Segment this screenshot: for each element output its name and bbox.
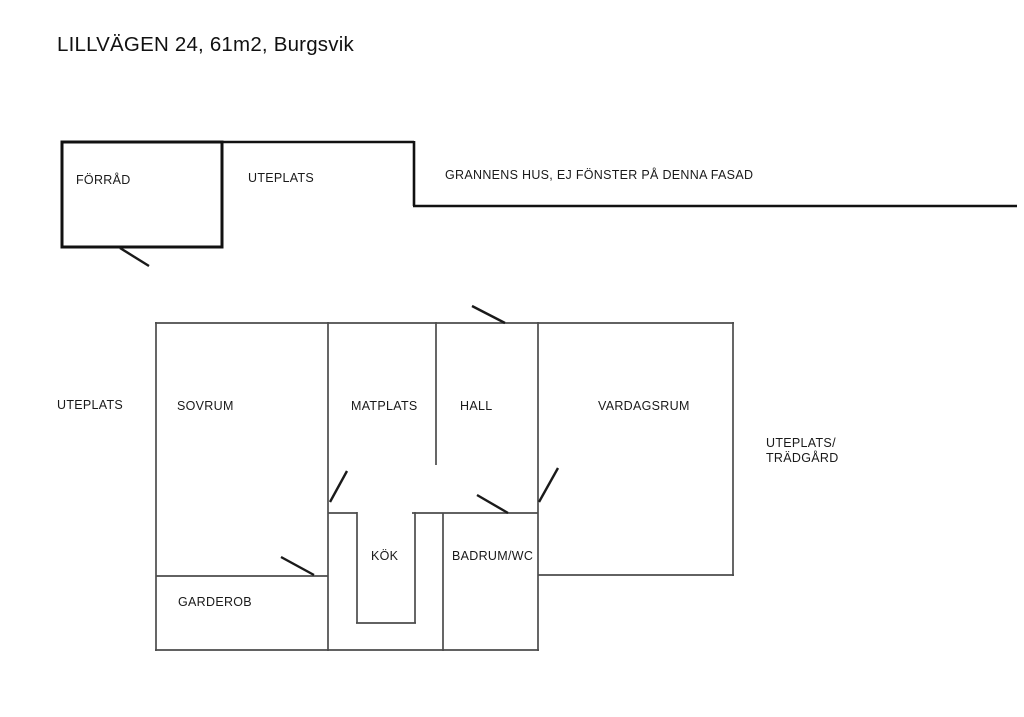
room-label-hall: HALL (460, 399, 492, 414)
room-label-forrad: FÖRRÅD (76, 173, 131, 188)
room-label-vardagsrum: VARDAGSRUM (598, 399, 690, 414)
area-label-uteplats-tradgard-line2: TRÄDGÅRD (766, 451, 839, 466)
area-label-uteplats-left: UTEPLATS (57, 398, 123, 413)
matplats-kok-door-swing-line (330, 471, 347, 502)
area-label-uteplats-tradgard-line1: UTEPLATS/ (766, 436, 839, 451)
vardagsrum-door-swing-line (539, 468, 558, 502)
floorplan-drawing (0, 0, 1024, 717)
page-title: LILLVÄGEN 24, 61m2, Burgsvik (57, 33, 354, 57)
area-label-uteplats-tradgard: UTEPLATS/ TRÄDGÅRD (766, 436, 839, 466)
room-label-sovrum: SOVRUM (177, 399, 234, 414)
entry-door-swing-line (472, 306, 505, 323)
room-label-garderob: GARDEROB (178, 595, 252, 610)
room-label-badrum-wc: BADRUM/WC (452, 549, 533, 564)
room-label-matplats: MATPLATS (351, 399, 418, 414)
forrad-door-swing-line (120, 248, 149, 266)
floorplan-page: LILLVÄGEN 24, 61m2, Burgsvik FÖRRÅD UTEP… (0, 0, 1024, 717)
area-label-uteplats-top: UTEPLATS (248, 171, 314, 186)
room-label-kok: KÖK (371, 549, 398, 564)
forrad-room-outline (62, 142, 222, 247)
garderob-door-swing-line (281, 557, 314, 575)
annotation-grannens-hus: GRANNENS HUS, EJ FÖNSTER PÅ DENNA FASAD (445, 168, 753, 183)
badrum-door-swing-line (477, 495, 508, 513)
